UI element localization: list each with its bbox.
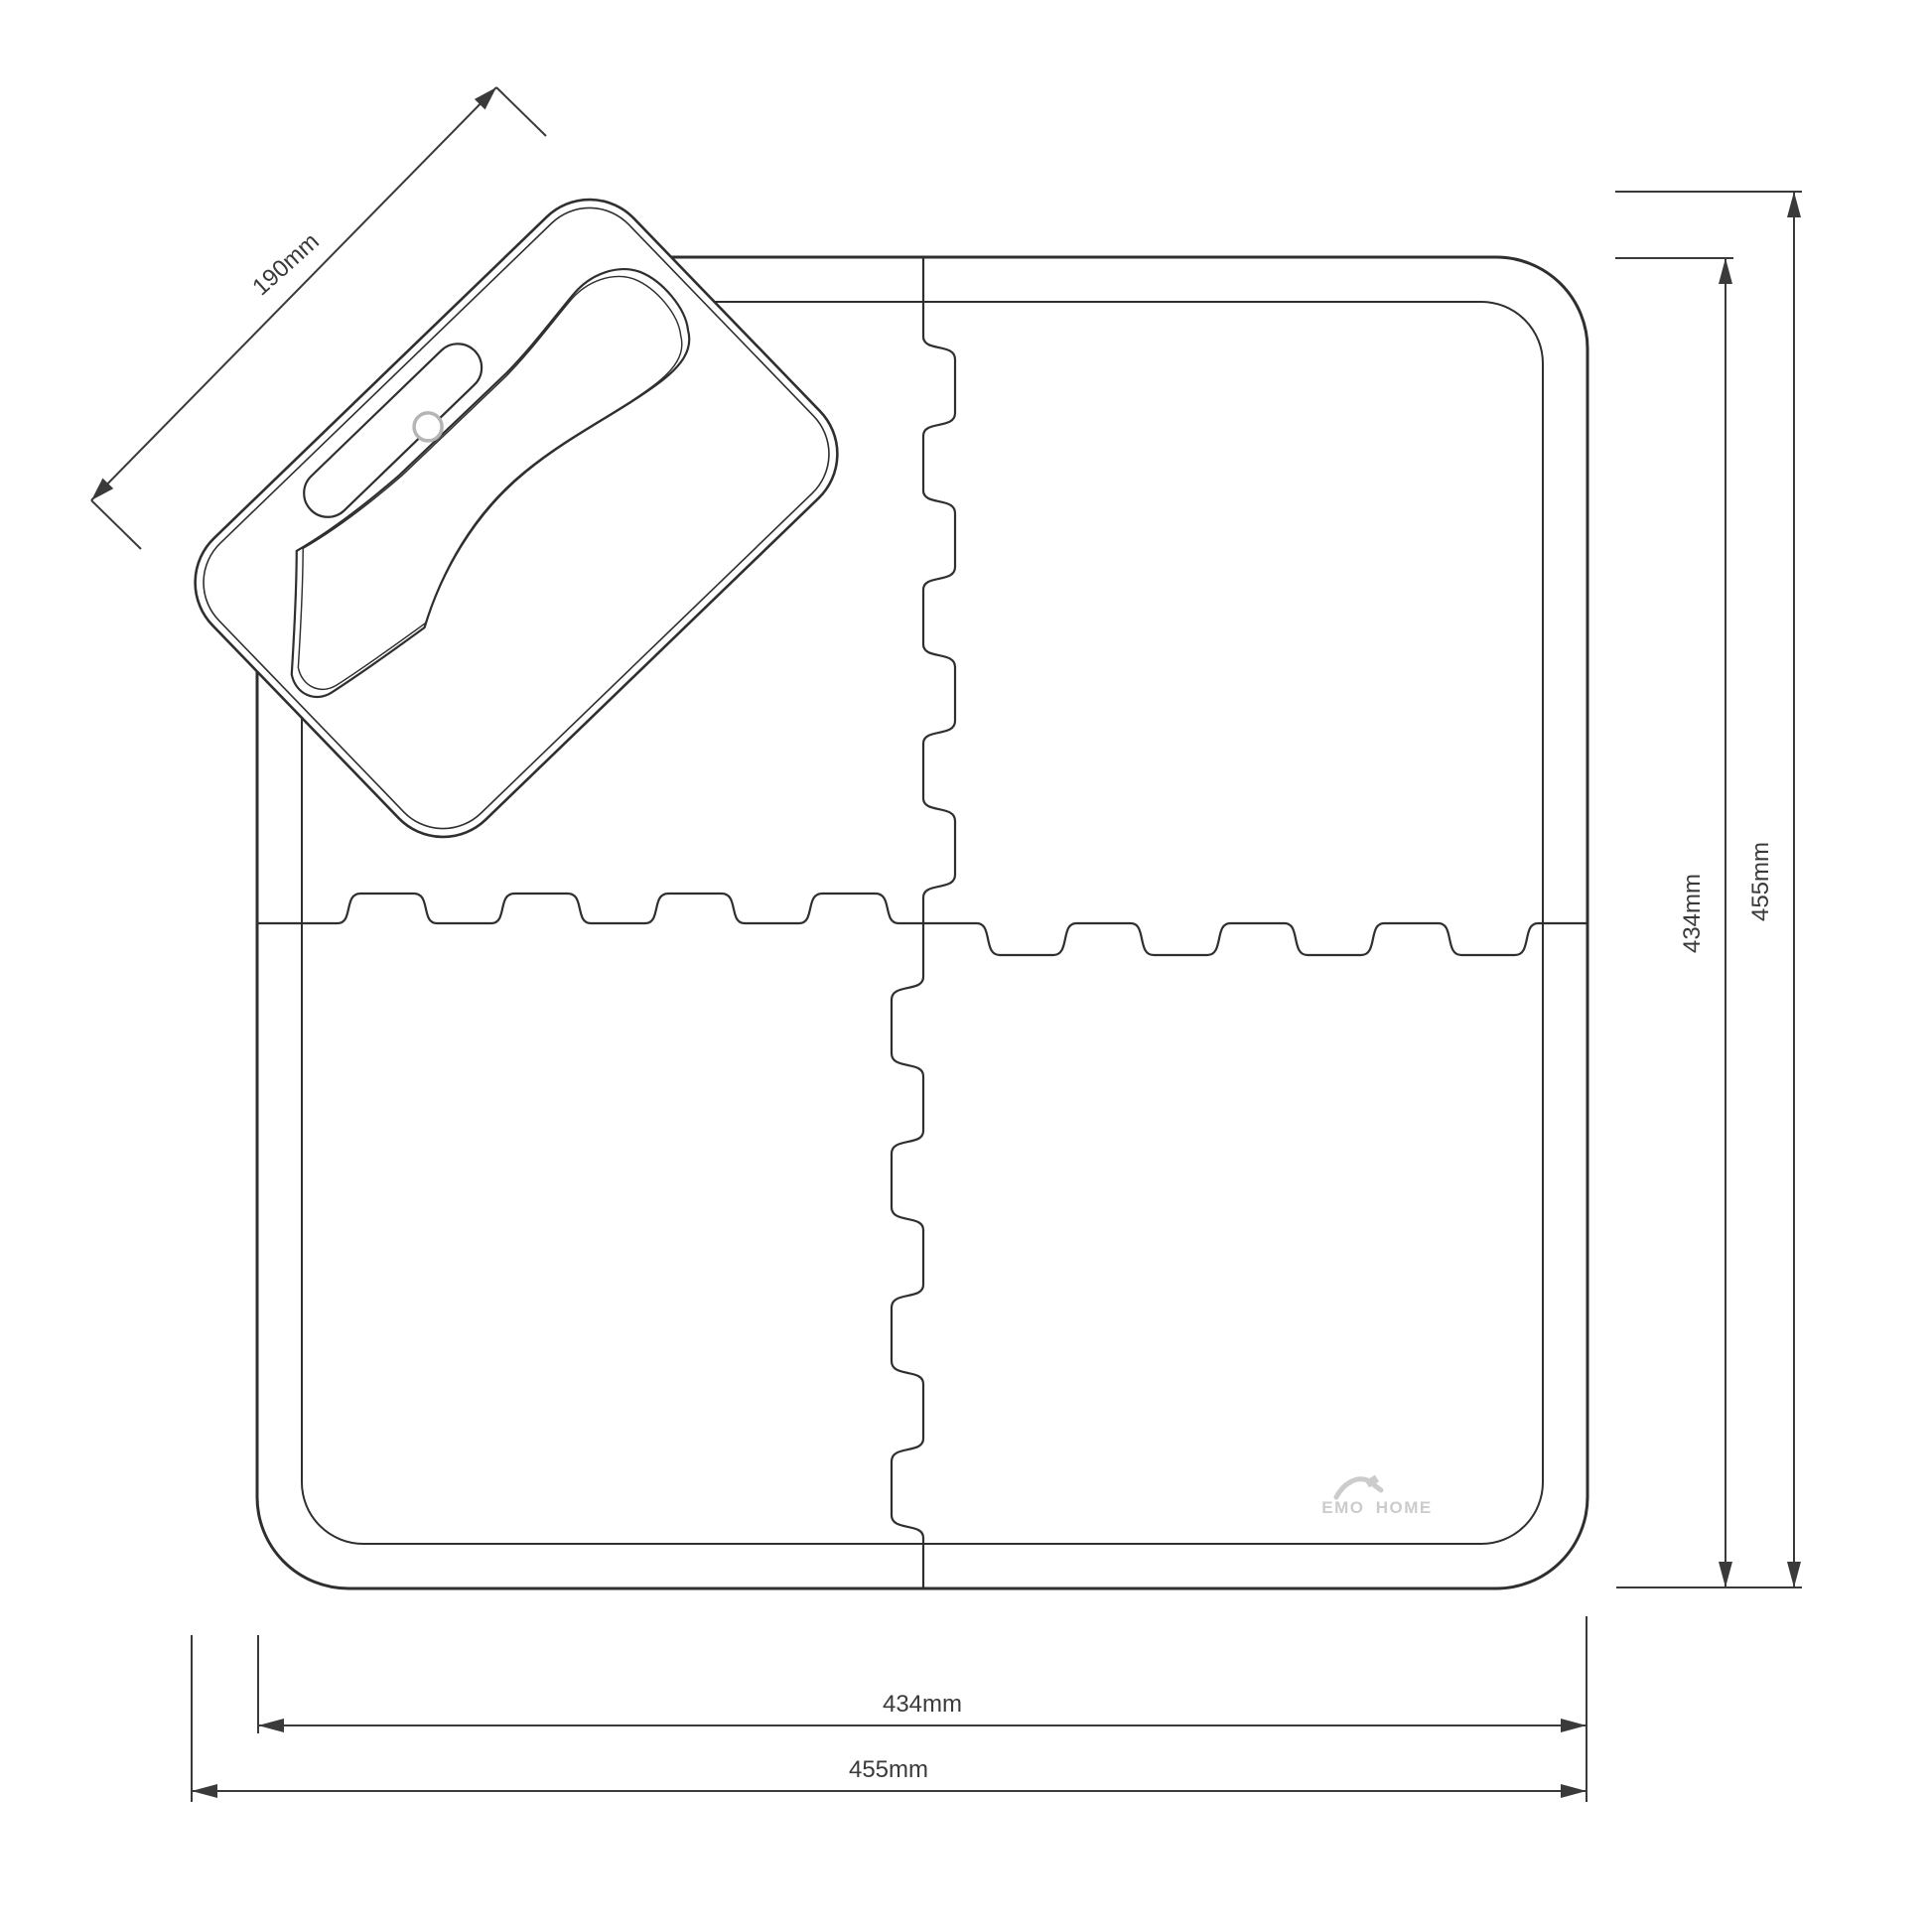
dimension-heights: 434mm 455mm	[1615, 192, 1802, 1587]
arrowhead-height-inner-bottom	[1719, 1562, 1732, 1587]
dimension-widths: 434mm 455mm	[192, 1616, 1587, 1802]
arrowhead-width-outer-left	[192, 1784, 217, 1798]
arrowhead-width-outer-right	[1561, 1784, 1587, 1798]
mat-drawing: EMO HOME	[0, 0, 1587, 1588]
dimension-label-height-outer: 455mm	[1747, 842, 1774, 921]
dimension-diagram: EMO HOME 190mm	[0, 0, 1932, 1931]
arrowhead-width-inner-right	[1561, 1719, 1587, 1732]
arrowhead-width-inner-left	[258, 1719, 284, 1732]
logo-text: EMO HOME	[1321, 1498, 1432, 1517]
dimension-label-height-inner: 434mm	[1679, 874, 1706, 953]
arrowhead-height-outer-top	[1787, 192, 1801, 217]
dimension-label-width-inner: 434mm	[883, 1691, 962, 1718]
logo-chimney-icon	[1367, 1478, 1377, 1484]
dimension-label-width-outer: 455mm	[849, 1756, 928, 1783]
arrowhead-height-outer-bottom	[1787, 1562, 1801, 1587]
arrowhead-height-inner-top	[1719, 258, 1732, 284]
